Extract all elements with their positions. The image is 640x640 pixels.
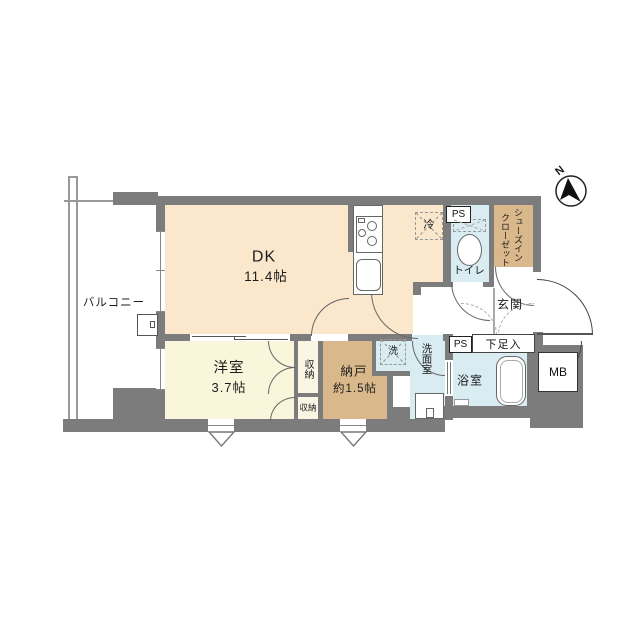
ps-lower-label: PS	[454, 339, 467, 350]
wall-closet-right	[318, 341, 323, 420]
bathroom-step	[454, 399, 469, 406]
window-bottom-storage	[340, 419, 366, 432]
meter-box-label: MB	[549, 365, 567, 379]
western-room-size-label: 3.7帖	[211, 381, 246, 395]
refrigerator-label: 冷	[423, 220, 436, 232]
wall-top	[113, 196, 541, 205]
balcony-rail-cap	[68, 176, 78, 178]
bathroom-label: 浴室	[457, 375, 483, 388]
balcony-rail-top	[64, 200, 113, 202]
wall-bottom-bath	[445, 406, 535, 418]
wall-left-c	[156, 388, 165, 420]
north-arrow-icon	[556, 176, 586, 206]
water-heater	[137, 314, 158, 336]
storage-room-label: 納戸	[340, 365, 367, 378]
washroom-label: 洗面室	[421, 343, 432, 375]
stove-burner-1	[367, 221, 377, 231]
shoes-closet-label-1: シューズイン	[513, 208, 522, 262]
wall-bottom-left-block	[113, 388, 156, 419]
dk-label: DK	[252, 250, 276, 267]
vanity-faucet	[426, 408, 434, 418]
wall-bath-right	[527, 345, 535, 406]
entrance-label: 玄関	[497, 299, 523, 312]
toilet-bowl	[457, 234, 482, 266]
washer-label: 洗	[387, 347, 399, 358]
shoe-box-label: 下足入	[486, 336, 522, 352]
storage-room-size-label: 約1.5帖	[333, 383, 377, 395]
dk-floor	[165, 205, 443, 282]
wall-top-left-block	[113, 192, 158, 205]
wall-duct	[393, 407, 410, 420]
dashed-arc-shoe-cabinet-left	[461, 303, 497, 335]
wall-closet-divider	[298, 393, 318, 397]
balcony-label: バルコニー	[83, 297, 145, 309]
wall-dk-bottom-2	[290, 334, 311, 341]
sliding-door-bathroom	[445, 360, 453, 396]
closet-upper-label: 収納	[302, 359, 312, 379]
storage-room-floor	[323, 341, 372, 420]
toilet-label: トイレ	[453, 265, 485, 276]
bathtub	[496, 356, 526, 406]
door-arc-entrance	[537, 279, 593, 335]
window-bottom-western	[208, 419, 234, 432]
wall-right	[533, 196, 541, 272]
vent-triangles	[209, 432, 366, 446]
kitchen-sink	[356, 259, 381, 291]
dk-size-label: 11.4帖	[244, 270, 288, 284]
wall-toilet-right	[489, 196, 494, 287]
wall-left-a	[156, 205, 165, 231]
closet-lower-label: 収納	[299, 404, 316, 413]
stove-grill	[358, 218, 365, 223]
ps-box-upper: PS	[446, 206, 471, 223]
ps-upper-label: PS	[452, 209, 465, 220]
balcony-rail-left-outer	[68, 176, 70, 419]
wall-bottom-band	[63, 419, 445, 432]
stove	[356, 216, 383, 253]
north-label: N	[553, 164, 567, 178]
ps-box-lower: PS	[449, 336, 472, 353]
stove-burner-2	[367, 236, 377, 246]
floor-plan: PS PS 下足入 MB バルコニー DK 11.4帖 洋室 3.7帖 納戸 約…	[0, 0, 640, 640]
balcony-rail-left-inner	[76, 176, 78, 419]
sliding-door-dk-western	[190, 334, 290, 341]
wall-dk-bottom-1	[156, 334, 190, 341]
window-dk-balcony	[156, 231, 165, 312]
window-western-balcony	[156, 348, 165, 390]
wall-washroom-bath-lower	[445, 396, 453, 420]
western-room-label: 洋室	[214, 361, 245, 376]
shoes-closet-label-2: クローゼット	[500, 213, 509, 267]
shoe-box: 下足入	[472, 334, 535, 353]
stove-burner-3	[358, 229, 366, 237]
meter-box: MB	[538, 352, 578, 392]
